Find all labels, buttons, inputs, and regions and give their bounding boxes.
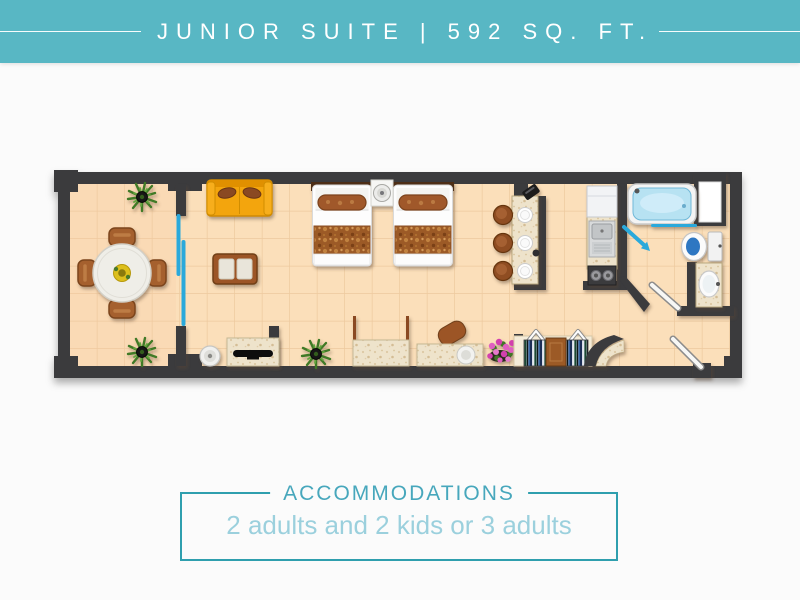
accommodations-box: ACCOMMODATIONS 2 adults and 2 kids or 3 … xyxy=(180,492,618,561)
coffee-table xyxy=(213,254,257,284)
clothes-rail xyxy=(524,340,546,366)
place-settings xyxy=(518,208,533,279)
accommodations-title: ACCOMMODATIONS xyxy=(270,481,528,507)
bathroom-window xyxy=(699,182,721,222)
toilet-icon xyxy=(682,232,723,261)
tv-icon xyxy=(233,350,273,357)
bar-right-wall xyxy=(538,196,546,290)
dining-table xyxy=(93,244,151,302)
bathtub-icon xyxy=(628,184,696,224)
stove-icon xyxy=(588,266,616,285)
kitchen-wall xyxy=(617,184,627,282)
tv-console xyxy=(227,338,279,366)
closet xyxy=(514,331,592,366)
bed-2 xyxy=(392,182,454,266)
stool xyxy=(200,346,220,366)
balcony-wall-upper xyxy=(176,184,186,216)
fridge-icon xyxy=(587,186,617,217)
safe xyxy=(546,338,566,366)
sofa xyxy=(207,180,272,216)
vanity-sink-icon xyxy=(696,263,722,307)
nightstand xyxy=(371,180,393,206)
sink-icon xyxy=(589,221,615,257)
shower-screen xyxy=(651,224,697,227)
bed-1 xyxy=(311,182,373,266)
balcony-wall-lower xyxy=(176,326,186,366)
capacity-text: 2 adults and 2 kids or 3 adults xyxy=(182,510,616,541)
kitchenette xyxy=(587,186,617,285)
bar-faucet xyxy=(533,250,540,257)
bar-stools xyxy=(494,206,513,281)
